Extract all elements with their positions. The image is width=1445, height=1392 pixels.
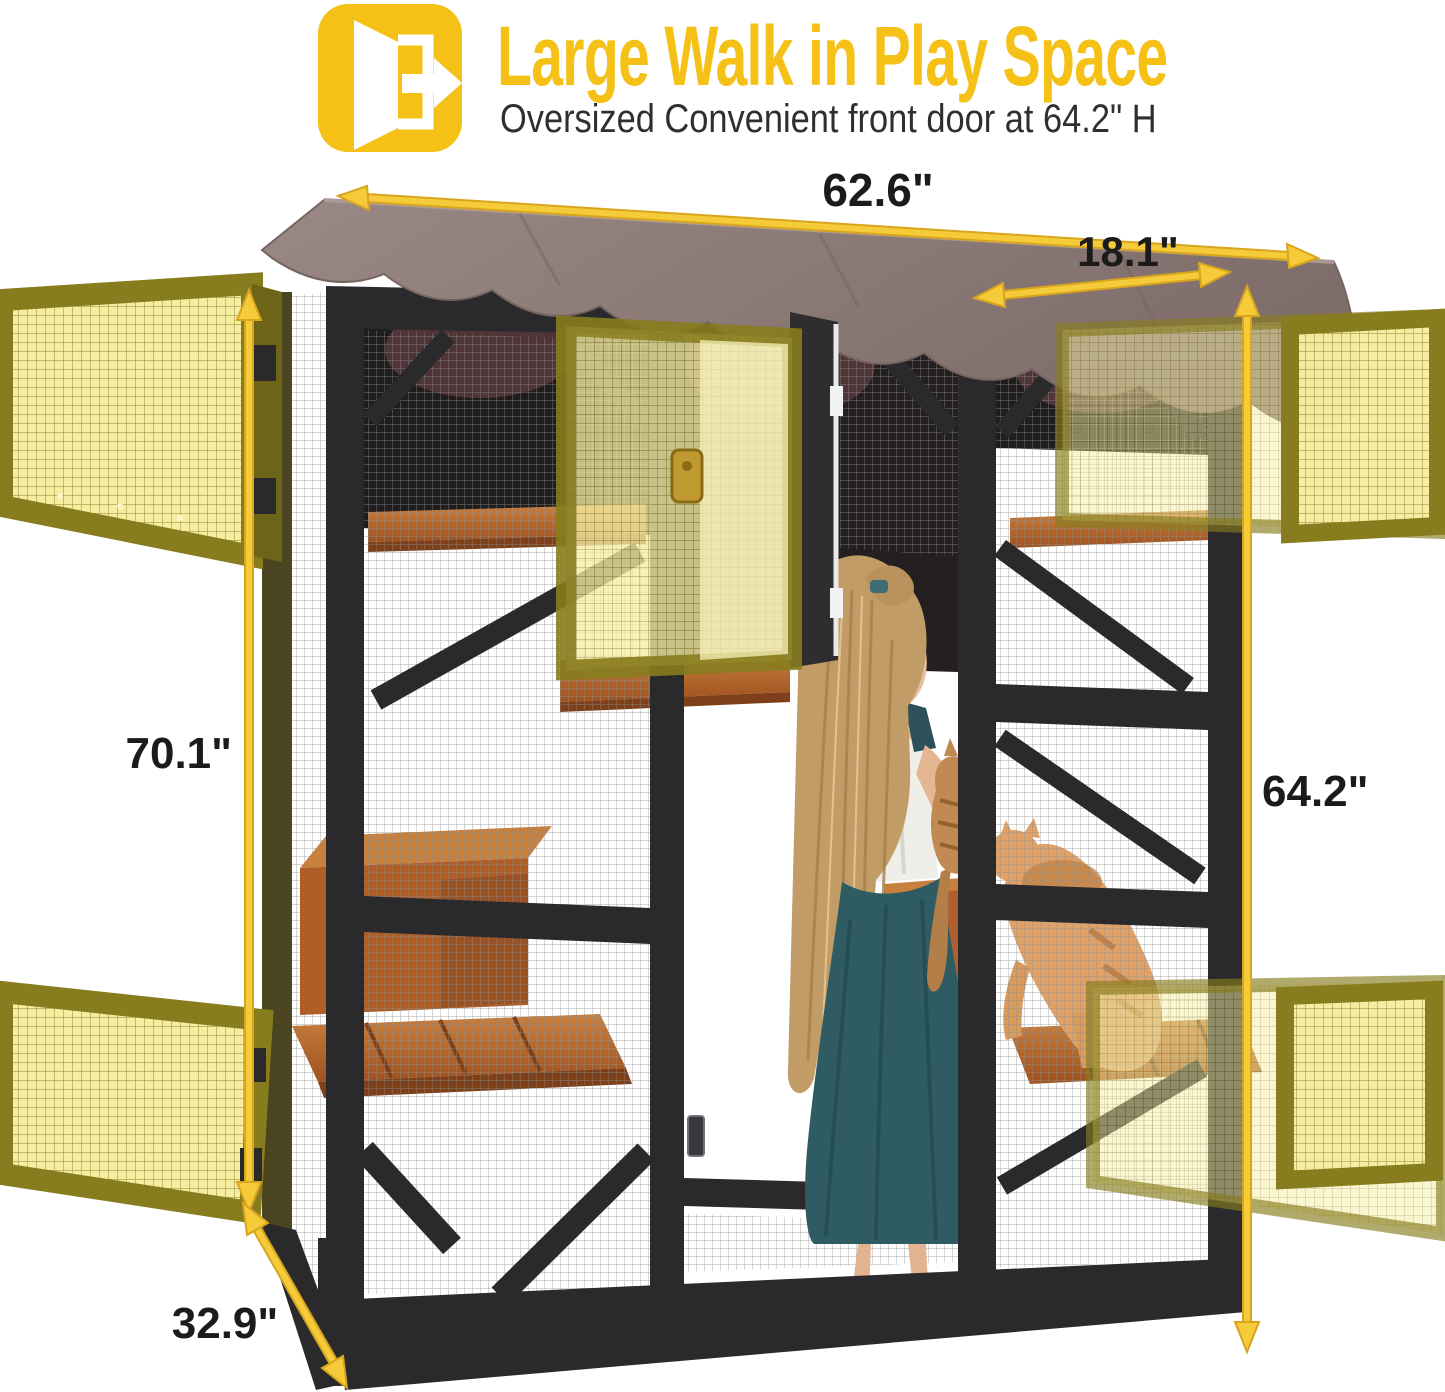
open-door-left-top bbox=[2, 284, 282, 562]
dimension-label-door-width: 18.1" bbox=[1077, 228, 1179, 275]
catio-dimension-diagram: 62.6" 18.1" 70.1" 64.2" bbox=[0, 0, 1445, 1392]
open-door-right-top bbox=[1062, 316, 1443, 534]
beam-right-upper bbox=[996, 684, 1208, 730]
dimension-label-door-height: 64.2" bbox=[1262, 767, 1369, 816]
post-mid-right bbox=[958, 300, 996, 1312]
dimension-label-overall-height: 70.1" bbox=[126, 729, 233, 778]
door-latch bbox=[688, 1116, 704, 1156]
post-front-left bbox=[326, 288, 364, 1348]
dimension-label-overall-width: 62.6" bbox=[822, 164, 933, 216]
dimension-label-depth: 32.9" bbox=[172, 1299, 279, 1348]
window-latch bbox=[672, 450, 702, 502]
product-infographic: Large Walk in Play Space Oversized Conve… bbox=[0, 0, 1445, 1392]
open-door-right-bottom bbox=[1093, 982, 1443, 1234]
open-window-front bbox=[566, 326, 792, 670]
open-door-left-bottom bbox=[2, 992, 266, 1212]
